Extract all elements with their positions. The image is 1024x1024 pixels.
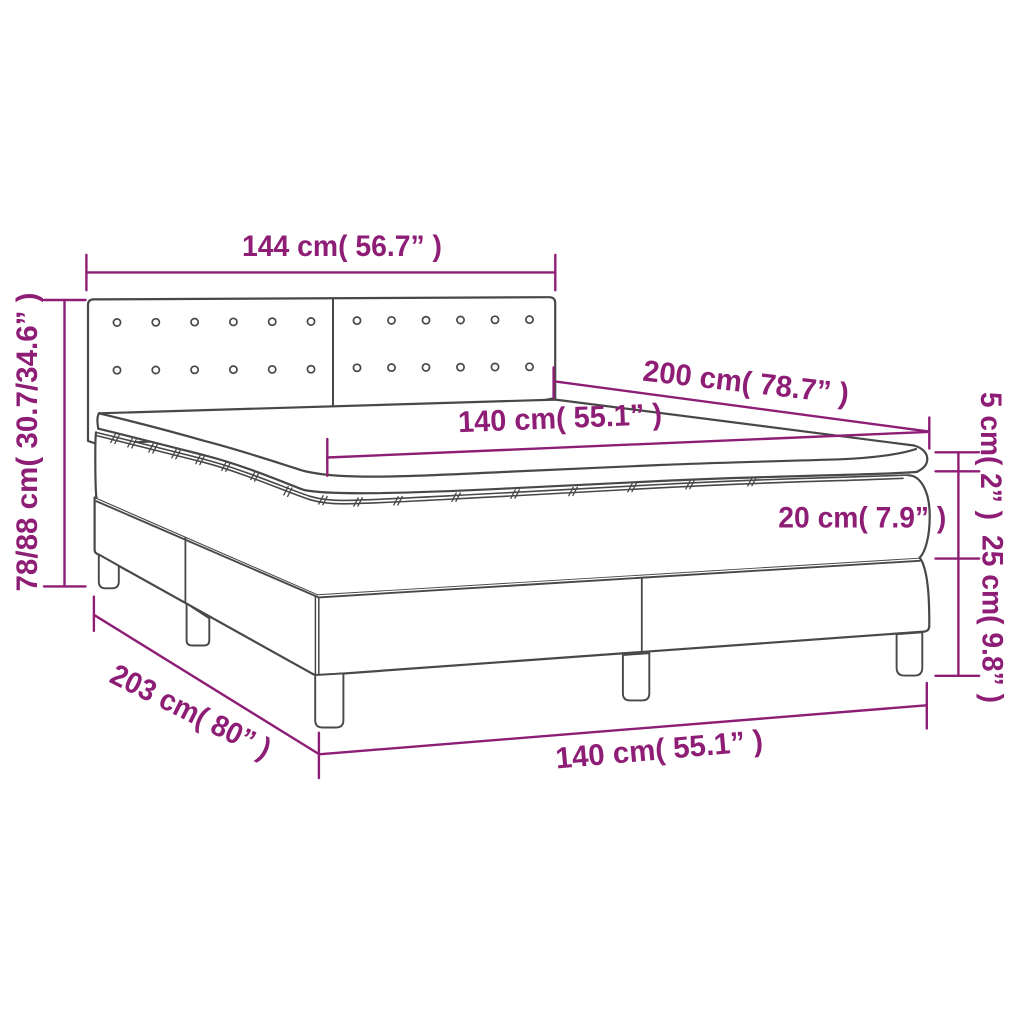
svg-text:5 cm( 2” ): 5 cm( 2” ) [974, 392, 1007, 520]
svg-text:78/88 cm( 30.7/34.6” ): 78/88 cm( 30.7/34.6” ) [11, 293, 44, 592]
svg-text:144 cm( 56.7” ): 144 cm( 56.7” ) [242, 230, 442, 263]
svg-text:20 cm( 7.9” ): 20 cm( 7.9” ) [778, 502, 946, 535]
svg-text:25 cm( 9.8” ): 25 cm( 9.8” ) [976, 535, 1009, 703]
